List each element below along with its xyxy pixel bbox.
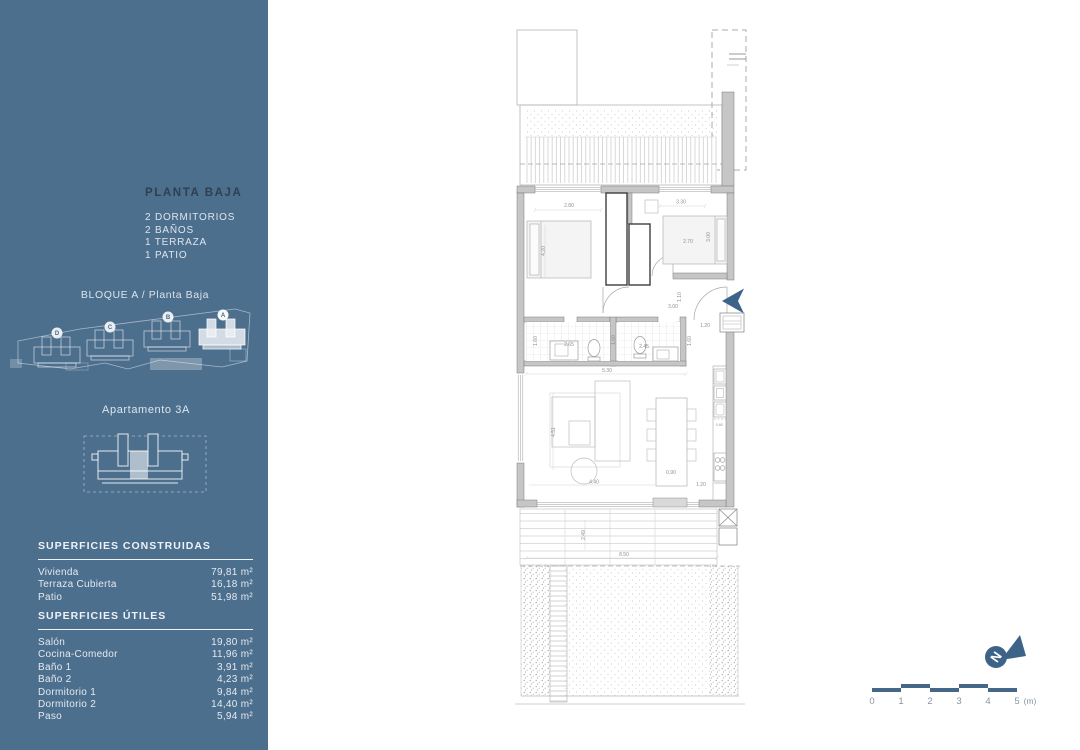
dim-label: 2.45 — [639, 344, 649, 350]
site-block-b — [144, 321, 190, 351]
row-label: Patio — [38, 592, 62, 604]
row-value: 9,84 m² — [217, 687, 253, 699]
north-and-scale: N 0 1 2 3 4 5 (m) — [860, 620, 1040, 710]
dim-label: 4.40 — [589, 480, 599, 486]
dim-label: 4.51 — [551, 427, 557, 437]
row-value: 51,98 m² — [211, 592, 253, 604]
row-label: Dormitorio 1 — [38, 687, 96, 699]
dim-label: 4.20 — [541, 246, 547, 256]
table-rows: Vivienda 79,81 m² Terraza Cubierta 16,18… — [38, 567, 253, 604]
dim-label: 8.50 — [619, 552, 629, 558]
dim-label: 3.30 — [676, 200, 686, 206]
row-label: Baño 1 — [38, 662, 72, 674]
dim-label: 3.00 — [706, 232, 712, 242]
site-block-d — [34, 337, 80, 367]
feature-item: 2 BAÑOS — [145, 225, 235, 238]
row-value: 11,96 m² — [212, 649, 253, 661]
dim-label: 2.70 — [683, 239, 693, 245]
feature-item: 2 DORMITORIOS — [145, 212, 235, 225]
row-value: 3,91 m² — [217, 662, 253, 674]
dim-label: 2.65 — [564, 342, 574, 348]
row-value: 5,94 m² — [217, 711, 253, 723]
table-row: Dormitorio 1 9,84 m² — [38, 687, 253, 699]
page-title: PLANTA BAJA — [145, 187, 242, 199]
scale-tick: 3 — [956, 696, 961, 707]
table-rows: Salón 19,80 m² Cocina-Comedor 11,96 m² B… — [38, 637, 253, 724]
useful-areas-table: SUPERFICIES ÚTILES Salón 19,80 m² Cocina… — [38, 610, 253, 724]
table-row: Paso 5,94 m² — [38, 711, 253, 723]
table-row: Salón 19,80 m² — [38, 637, 253, 649]
table-row: Cocina-Comedor 11,96 m² — [38, 649, 253, 661]
site-pool — [150, 358, 202, 370]
table-row: Patio 51,98 m² — [38, 592, 253, 604]
row-label: Terraza Cubierta — [38, 579, 117, 591]
site-extra — [10, 359, 22, 368]
dim-label: 5.30 — [602, 368, 612, 374]
site-extra — [230, 349, 246, 361]
apartment-label: Apartamento 3A — [0, 404, 268, 416]
dim-label: 1.60 — [533, 336, 539, 346]
dim-label: 1.60 — [611, 335, 617, 345]
constructed-areas-table: SUPERFICIES CONSTRUIDAS Vivienda 79,81 m… — [38, 540, 253, 604]
table-row: Baño 1 3,91 m² — [38, 662, 253, 674]
scale-tick: 1 — [898, 696, 903, 707]
table-heading: SUPERFICIES ÚTILES — [38, 610, 253, 630]
page: PLANTA BAJA 2 DORMITORIOS 2 BAÑOS 1 TERR… — [0, 0, 1080, 750]
table-heading: SUPERFICIES CONSTRUIDAS — [38, 540, 253, 560]
site-block-letter: D — [55, 331, 60, 337]
dim-label: 2.80 — [564, 203, 574, 209]
sidebar: PLANTA BAJA 2 DORMITORIOS 2 BAÑOS 1 TERR… — [0, 0, 268, 750]
scale-tick: 4 — [985, 696, 990, 707]
floor-plan-drawing: 2.80 4.20 3.30 2.70 3.00 1.10 3.00 1.20 … — [505, 25, 755, 715]
row-label: Cocina-Comedor — [38, 649, 118, 661]
site-plan-sketch: D C B A — [10, 303, 260, 388]
dim-label: 0.90 — [666, 470, 676, 476]
scale-tick: 0 — [869, 696, 874, 707]
row-value: 19,80 m² — [211, 637, 253, 649]
roof-outline — [517, 30, 577, 105]
site-block-a — [199, 319, 245, 349]
scale-bar — [872, 684, 1017, 692]
table-row: Baño 2 4,23 m² — [38, 674, 253, 686]
highlighted-unit — [130, 451, 148, 479]
feature-list: 2 DORMITORIOS 2 BAÑOS 1 TERRAZA 1 PATIO — [145, 212, 235, 262]
patio — [515, 566, 745, 704]
scale-tick: 5 — [1014, 696, 1019, 707]
site-block-letter: C — [108, 325, 113, 331]
dim-label: 1.20 — [696, 482, 706, 488]
site-block-letter: B — [166, 315, 171, 321]
site-block-letter: A — [221, 313, 226, 319]
row-value: 79,81 m² — [211, 567, 253, 579]
apartment-diagram — [80, 426, 210, 496]
dim-label: 2.49 — [581, 530, 587, 540]
dim-label: 0.60 — [716, 423, 723, 427]
row-label: Vivienda — [38, 567, 79, 579]
row-value: 14,40 m² — [211, 699, 253, 711]
row-value: 16,18 m² — [211, 579, 253, 591]
scale-unit: (m) — [1024, 696, 1037, 706]
terrace — [520, 105, 734, 185]
kitchen — [713, 366, 726, 500]
entrance-arrow-icon — [722, 289, 744, 314]
utility-boxes — [719, 509, 737, 545]
table-row: Terraza Cubierta 16,18 m² — [38, 579, 253, 591]
row-label: Salón — [38, 637, 65, 649]
feature-item: 1 TERRAZA — [145, 237, 235, 250]
scale-labels: 0 1 2 3 4 5 (m) — [869, 696, 1036, 707]
dim-label: 1.20 — [700, 323, 710, 329]
dim-label: 3.00 — [668, 304, 678, 310]
dim-label: 1.10 — [677, 292, 683, 302]
row-label: Baño 2 — [38, 674, 72, 686]
rear-deck — [520, 509, 740, 566]
row-label: Paso — [38, 711, 62, 723]
row-value: 4,23 m² — [217, 674, 253, 686]
north-arrow-icon: N — [985, 635, 1026, 668]
scale-tick: 2 — [927, 696, 932, 707]
sofa-group — [550, 381, 630, 484]
site-block-c — [87, 330, 133, 360]
block-label: BLOQUE A / Planta Baja — [0, 289, 268, 301]
table-row: Vivienda 79,81 m² — [38, 567, 253, 579]
table-row: Dormitorio 2 14,40 m² — [38, 699, 253, 711]
dim-label: 1.60 — [687, 336, 693, 346]
row-label: Dormitorio 2 — [38, 699, 96, 711]
feature-item: 1 PATIO — [145, 250, 235, 263]
entry-planter — [720, 313, 744, 332]
